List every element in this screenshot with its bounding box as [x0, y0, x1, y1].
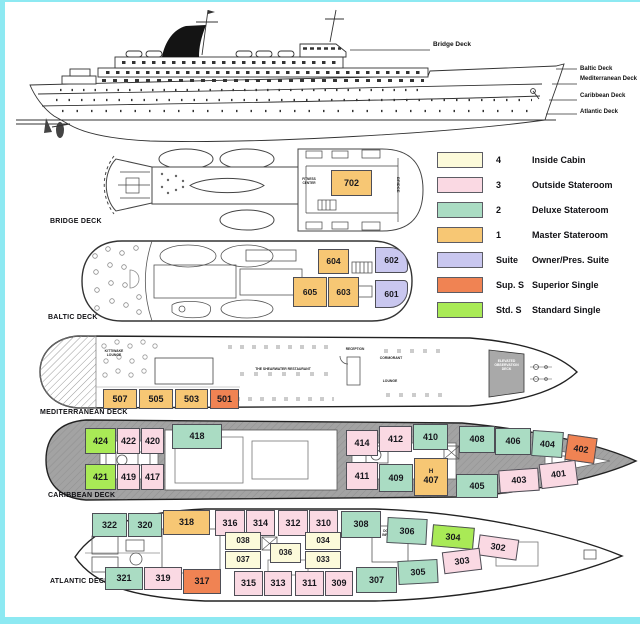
cabin-411: 411 — [346, 462, 378, 490]
legend-item-master-stateroom: 1Master Stateroom — [437, 226, 613, 243]
cabin-311: 311 — [295, 571, 324, 596]
legend-label: Outside Stateroom — [532, 180, 613, 190]
legend-swatch-owner-pres-suite — [437, 252, 483, 268]
deck-label-atlantic-deck: ATLANTIC DECK — [50, 578, 110, 585]
cabin-312: 312 — [278, 510, 308, 536]
venue-label-the-shearwater-restaurant: THE SHEARWATER RESTAURANT — [243, 367, 323, 371]
legend-swatch-superior-single — [437, 277, 483, 293]
cabin-414: 414 — [346, 430, 378, 456]
venue-label-cormorant: CORMORANT — [376, 356, 406, 360]
legend-swatch-master-stateroom — [437, 227, 483, 243]
ship-deck-plan-page: Bridge Deck Baltic DeckMediterranean Dec… — [0, 0, 640, 624]
profile-deck-label-mediterranean-deck: Mediterranean Deck — [580, 76, 638, 83]
cabin-420: 420 — [141, 428, 164, 454]
cabin-501: 501 — [210, 389, 239, 409]
legend-code: 4 — [496, 155, 532, 165]
legend-label: Deluxe Stateroom — [532, 205, 609, 215]
cabin-038: 038 — [225, 532, 261, 550]
cabin-category-legend: 4Inside Cabin3Outside Stateroom2Deluxe S… — [437, 151, 613, 326]
legend-label: Standard Single — [532, 305, 601, 315]
cabin-304: 304 — [431, 524, 475, 550]
legend-code: 3 — [496, 180, 532, 190]
deck-label-baltic-deck: BALTIC DECK — [48, 314, 98, 321]
cabin-305: 305 — [397, 559, 438, 585]
legend-item-inside-cabin: 4Inside Cabin — [437, 151, 613, 168]
legend-item-owner-pres-suite: SuiteOwner/Pres. Suite — [437, 251, 613, 268]
cabin-307: 307 — [356, 567, 397, 593]
page-border-top — [0, 0, 640, 2]
page-border-left — [0, 0, 5, 624]
cabin-403: 403 — [498, 468, 540, 494]
legend-swatch-inside-cabin — [437, 152, 483, 168]
legend-item-deluxe-stateroom: 2Deluxe Stateroom — [437, 201, 613, 218]
cabin-308: 308 — [341, 511, 381, 538]
deck-label-mediterranean-deck: MEDITERRANEAN DECK — [40, 409, 128, 416]
cabin-322: 322 — [92, 513, 127, 537]
legend-item-outside-stateroom: 3Outside Stateroom — [437, 176, 613, 193]
cabin-503: 503 — [175, 389, 208, 409]
venue-label-fitness-center: FITNESS CENTER — [298, 178, 320, 186]
legend-code: 2 — [496, 205, 532, 215]
profile-deck-label-baltic-deck: Baltic Deck — [580, 66, 638, 73]
cabin-422: 422 — [117, 428, 140, 454]
legend-code: Suite — [496, 255, 532, 265]
legend-code: Sup. S — [496, 280, 532, 290]
cabin-418: 418 — [172, 424, 222, 449]
profile-bridge-deck-label: Bridge Deck — [433, 41, 471, 48]
cabin-318: 318 — [163, 510, 210, 535]
cabin-036: 036 — [270, 543, 301, 563]
deck-label-bridge-deck: BRIDGE DECK — [50, 218, 102, 225]
legend-label: Superior Single — [532, 280, 599, 290]
cabin-408: 408 — [459, 426, 495, 453]
profile-deck-label-caribbean-deck: Caribbean Deck — [580, 93, 638, 100]
venue-label-elevated-observation-deck: ELEVATED OBSERVATION DECK — [490, 359, 523, 371]
cabin-406: 406 — [495, 428, 531, 455]
cabin-419: 419 — [117, 464, 140, 490]
cabin-401: 401 — [539, 460, 579, 489]
legend-label: Inside Cabin — [532, 155, 586, 165]
cabin-321: 321 — [105, 567, 143, 590]
legend-code: 1 — [496, 230, 532, 240]
cabin-505: 505 — [139, 389, 173, 409]
cabin-603: 603 — [328, 277, 359, 307]
cabin-034: 034 — [305, 532, 341, 550]
cabin-424: 424 — [85, 428, 116, 454]
cabin-037: 037 — [225, 551, 261, 569]
legend-item-superior-single: Sup. SSuperior Single — [437, 276, 613, 293]
page-border-bottom — [0, 617, 640, 624]
cabin-604: 604 — [318, 249, 349, 274]
venue-label-reception: RECEPTION — [342, 348, 368, 352]
cabin-306: 306 — [386, 517, 427, 545]
cabin-033: 033 — [305, 551, 341, 569]
cabin-602: 602 — [375, 247, 408, 273]
cabin-421: 421 — [85, 464, 116, 490]
cabin-409: 409 — [379, 464, 413, 492]
cabin-405: 405 — [456, 474, 498, 498]
legend-label: Owner/Pres. Suite — [532, 255, 609, 265]
cabin-303: 303 — [442, 548, 482, 574]
cabin-507: 507 — [103, 389, 137, 409]
venue-label-bridge: BRIDGE — [395, 177, 400, 189]
legend-swatch-outside-stateroom — [437, 177, 483, 193]
legend-code: Std. S — [496, 305, 532, 315]
venue-label-lounge: LOUNGE — [379, 379, 401, 383]
cabin-702: 702 — [331, 170, 372, 196]
cabin-605: 605 — [293, 277, 327, 307]
profile-deck-label-atlantic-deck: Atlantic Deck — [580, 109, 638, 116]
cabin-315: 315 — [234, 571, 263, 596]
cabin-407: H407 — [414, 458, 448, 496]
cabin-309: 309 — [325, 571, 353, 596]
cabin-317: 317 — [183, 569, 221, 594]
cabin-417: 417 — [141, 464, 164, 490]
cabin-601: 601 — [375, 280, 408, 308]
cabin-319: 319 — [144, 567, 182, 590]
legend-label: Master Stateroom — [532, 230, 608, 240]
cabin-313: 313 — [264, 571, 292, 596]
venue-label-kittiwake-lounge: KITTIWAKE LOUNGE — [98, 349, 130, 357]
deck-label-caribbean-deck: CARIBBEAN DECK — [48, 492, 115, 499]
legend-swatch-deluxe-stateroom — [437, 202, 483, 218]
cabin-412: 412 — [379, 426, 412, 452]
cabin-410: 410 — [413, 424, 448, 450]
legend-item-standard-single: Std. SStandard Single — [437, 301, 613, 318]
cabin-320: 320 — [128, 513, 162, 537]
cabin-404: 404 — [531, 430, 564, 458]
cabin-302: 302 — [477, 534, 520, 560]
legend-swatch-standard-single — [437, 302, 483, 318]
